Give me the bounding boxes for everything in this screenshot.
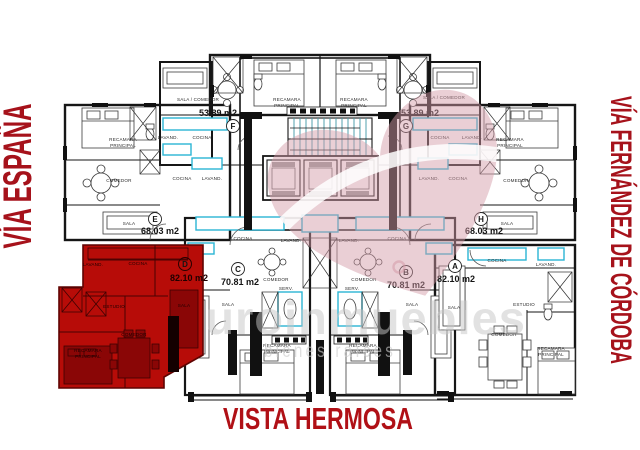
unit-letter-h: H: [478, 215, 484, 224]
room-label-cocina: COCINA: [192, 135, 212, 140]
street-label-via-espana: VÍA ESPAÑA: [0, 104, 40, 249]
unit-area-a: 82.10 m2: [437, 274, 475, 284]
unit-area-e: 68.03 m2: [141, 226, 179, 236]
room-label-recamara: RECAMARA: [109, 137, 137, 142]
room-label-recamara: PRINCIPAL: [538, 352, 564, 357]
dining-table: [521, 165, 557, 201]
unit-area-f: 53.89 m2: [199, 108, 237, 118]
watermark-tagline-text: bienes raíces: [264, 341, 396, 362]
room-label-recamara: RECAMARA: [74, 348, 102, 353]
room-label-recamara: PRINCIPAL: [341, 103, 367, 108]
unit-letter-c: C: [235, 265, 241, 274]
street-label-via-fernandez-de-cordoba: VÍA FERNÁNDEZ DE CÓRDOBA: [604, 96, 638, 364]
floorplan-page: SALA / COMEDOR SALA / COMEDOR RECAMARA P…: [0, 0, 640, 450]
room-label-lavand: LAVAND.: [202, 176, 222, 181]
room-label-comedor: COMEDOR: [121, 332, 147, 337]
toilet: [254, 74, 262, 90]
room-label-recamara: RECAMARA: [496, 137, 524, 142]
unit-marker-c[interactable]: C: [232, 263, 245, 276]
room-label-cocina: COCINA: [233, 236, 253, 241]
room-label-recamara: PRINCIPAL: [110, 143, 136, 148]
room-label-serv: SERV.: [345, 286, 359, 291]
unit-area-d: 82.10 m2: [170, 273, 208, 283]
room-label-lavand: LAVAND.: [158, 135, 178, 140]
room-label-cocina: COCINA: [487, 258, 507, 263]
room-label-recamara: PRINCIPAL: [497, 143, 523, 148]
unit-letter-f: F: [231, 122, 236, 131]
closet-x: [548, 272, 572, 302]
closet-x: [140, 150, 160, 174]
unit-letter-a: A: [452, 262, 458, 271]
room-label-lavand: LAVAND.: [536, 262, 556, 267]
room-label-sala-comedor: SALA / COMEDOR: [177, 97, 220, 102]
room-label-recamara: RECAMARA: [537, 346, 565, 351]
room-label-comedor: COMEDOR: [503, 178, 529, 183]
room-label-lavand: LAVAND.: [83, 262, 103, 267]
room-label-serv: SERV.: [279, 286, 293, 291]
room-label-estudio: ESTUDIO: [103, 304, 125, 309]
room-label-cocina: COCINA: [128, 261, 148, 266]
unit-letter-d: D: [182, 260, 188, 269]
room-label-sala: SALA: [123, 221, 136, 226]
floorplan-svg: SALA / COMEDOR SALA / COMEDOR RECAMARA P…: [0, 0, 640, 450]
room-label-comedor: COMEDOR: [106, 178, 132, 183]
plan-title: VISTA HERMOSA: [223, 401, 413, 436]
room-label-recamara: PRINCIPAL: [274, 103, 300, 108]
unit-letter-e: E: [152, 215, 158, 224]
room-label-lavand: LAVAND.: [281, 238, 301, 243]
watermark-brand-text: euroinmuebles: [178, 292, 526, 344]
sofa: [163, 68, 207, 88]
bed: [82, 108, 134, 148]
sofa: [433, 68, 477, 88]
room-label-recamara: RECAMARA: [273, 97, 301, 102]
dining-table: [83, 165, 119, 201]
bed: [506, 108, 558, 148]
toilet: [378, 74, 386, 90]
room-label-recamara: RECAMARA: [340, 97, 368, 102]
room-label-cocina: COCINA: [172, 176, 192, 181]
toilet: [544, 304, 552, 320]
dining-table: [258, 248, 286, 276]
unit-area-c: 70.81 m2: [221, 277, 259, 287]
unit-marker-f[interactable]: F: [227, 120, 240, 133]
room-label-sala: SALA: [178, 303, 191, 308]
room-label-recamara: PRINCIPAL: [75, 354, 101, 359]
unit-marker-e[interactable]: E: [149, 213, 162, 226]
room-label-comedor: COMEDOR: [263, 277, 289, 282]
